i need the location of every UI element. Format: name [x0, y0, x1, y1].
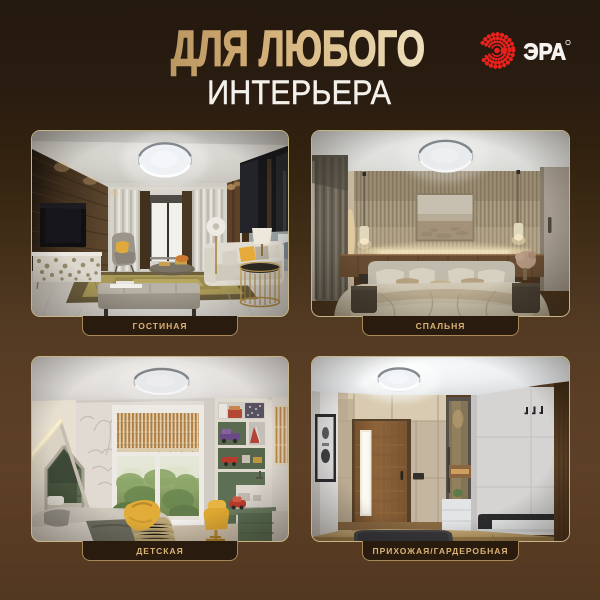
- svg-text:ЭРА: ЭРА: [524, 38, 567, 64]
- svg-text:ИНТЕРЬЕРА: ИНТЕРЬЕРА: [207, 74, 391, 112]
- svg-text:ДЛЯ ЛЮБОГО: ДЛЯ ЛЮБОГО: [171, 21, 425, 77]
